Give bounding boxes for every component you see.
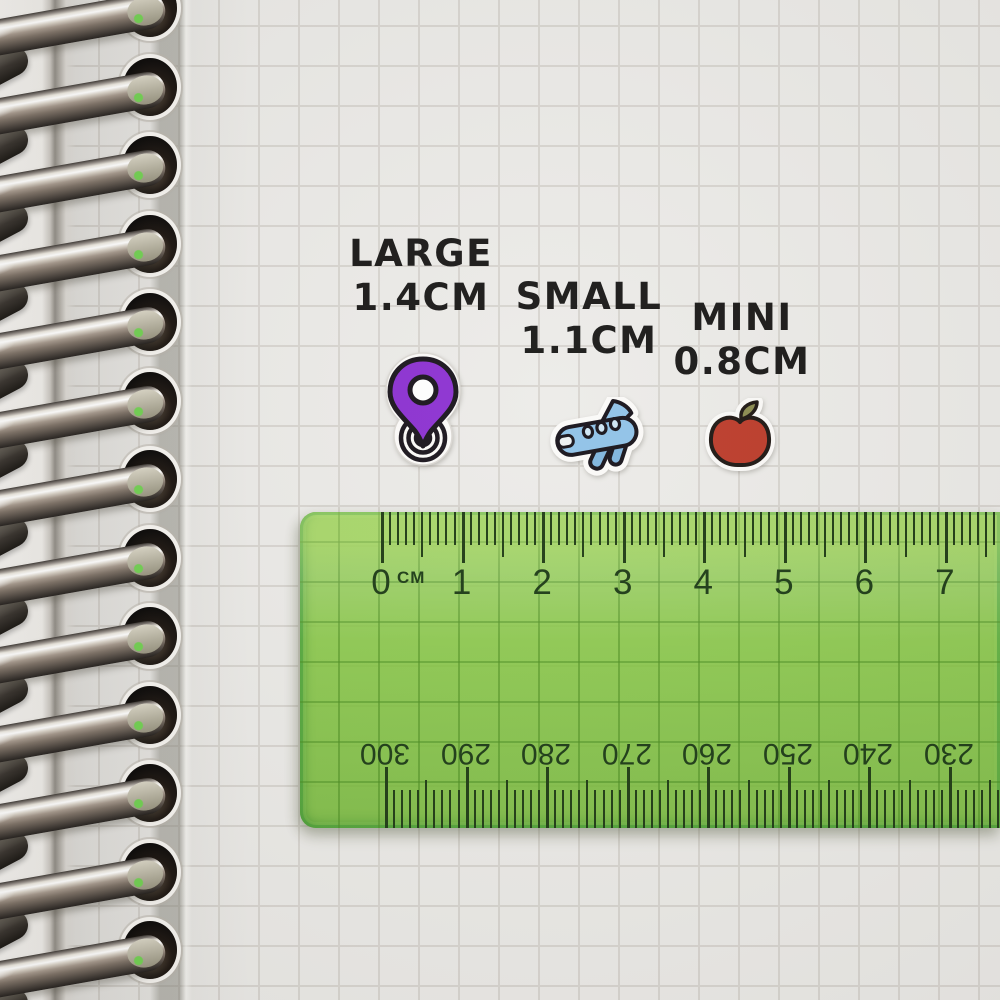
cm-tick — [679, 512, 681, 545]
mm-tick — [917, 790, 919, 828]
cm-tick — [542, 512, 545, 563]
mm-tick — [554, 790, 556, 828]
cm-tick-label: 4 — [694, 563, 713, 603]
mm-tick — [989, 780, 991, 828]
mm-tick — [748, 780, 750, 828]
mm-tick — [949, 767, 952, 828]
mm-tick — [828, 780, 830, 828]
mm-tick — [417, 790, 419, 828]
mm-tick — [852, 790, 854, 828]
mm-tick — [691, 790, 693, 828]
cm-tick — [945, 512, 948, 563]
sticker-location-pin — [384, 347, 462, 472]
cm-tick — [389, 512, 391, 545]
mm-tick — [401, 790, 403, 828]
mm-tick — [731, 790, 733, 828]
cm-tick — [647, 512, 649, 545]
cm-tick — [784, 512, 787, 563]
mm-tick-label: 240 — [843, 736, 893, 770]
cm-tick — [977, 512, 979, 545]
ruler: 01234567 300290280270260250240230 CM — [300, 512, 1000, 828]
mm-tick — [860, 790, 862, 828]
cm-tick — [953, 512, 955, 545]
mm-tick — [643, 790, 645, 828]
cm-tick — [937, 512, 939, 545]
mm-tick-label: 230 — [924, 736, 974, 770]
cm-tick — [687, 512, 689, 545]
cm-tick — [671, 512, 673, 545]
mm-tick — [925, 790, 927, 828]
binding-shadow — [0, 0, 270, 1000]
cm-tick-label: 0 — [371, 563, 390, 603]
cm-tick — [961, 512, 963, 545]
mm-tick — [530, 790, 532, 828]
mm-tick — [490, 790, 492, 828]
cm-tick-label: 6 — [855, 563, 874, 603]
cm-tick — [502, 512, 504, 557]
mm-tick — [522, 790, 524, 828]
cm-tick — [921, 512, 923, 545]
cm-tick — [445, 512, 447, 545]
mm-tick — [780, 790, 782, 828]
label-mini-name: MINI — [642, 296, 842, 340]
mm-tick — [667, 780, 669, 828]
mm-tick — [901, 790, 903, 828]
cm-tick — [518, 512, 520, 545]
mm-tick — [441, 790, 443, 828]
cm-tick — [413, 512, 415, 545]
cm-tick — [510, 512, 512, 545]
cm-tick — [711, 512, 713, 545]
mm-tick — [804, 790, 806, 828]
mm-tick — [820, 790, 822, 828]
cm-tick — [719, 512, 721, 545]
mm-tick — [635, 790, 637, 828]
mm-tick — [715, 790, 717, 828]
mm-tick — [876, 790, 878, 828]
mm-tick — [868, 767, 871, 828]
cm-tick — [381, 512, 384, 563]
cm-tick-label: 3 — [613, 563, 632, 603]
label-large-name: LARGE — [321, 232, 521, 276]
cm-tick — [792, 512, 794, 545]
cm-tick — [615, 512, 617, 545]
cm-tick — [550, 512, 552, 545]
mm-tick — [594, 790, 596, 828]
label-mini: MINI 0.8CM — [642, 296, 842, 384]
cm-tick — [824, 512, 826, 557]
mm-tick — [836, 790, 838, 828]
cm-tick — [776, 512, 778, 545]
cm-tick — [703, 512, 706, 563]
mm-tick — [707, 767, 710, 828]
mm-tick — [739, 790, 741, 828]
cm-tick — [574, 512, 576, 545]
cm-tick-label: 7 — [935, 563, 954, 603]
mm-tick — [385, 767, 388, 828]
cm-tick — [735, 512, 737, 545]
photo-notebook-scene: LARGE 1.4CM SMALL 1.1CM MINI 0.8CM — [0, 0, 1000, 1000]
cm-tick — [864, 512, 867, 563]
cm-tick — [993, 512, 995, 545]
mm-tick — [603, 790, 605, 828]
cm-tick — [760, 512, 762, 545]
location-pin-icon — [384, 347, 462, 467]
mm-tick — [458, 790, 460, 828]
mm-tick-label: 270 — [602, 736, 652, 770]
cm-tick — [534, 512, 536, 545]
mm-tick — [466, 767, 469, 828]
mm-tick — [611, 790, 613, 828]
mm-tick — [844, 790, 846, 828]
mm-tick — [498, 790, 500, 828]
cm-tick — [607, 512, 609, 545]
ruler-sheen — [300, 512, 1000, 828]
mm-tick — [474, 790, 476, 828]
cm-tick — [663, 512, 665, 557]
mm-tick — [449, 790, 451, 828]
mm-tick — [586, 780, 588, 828]
cm-tick — [429, 512, 431, 545]
cm-tick — [872, 512, 874, 545]
mm-tick — [562, 790, 564, 828]
cm-tick — [454, 512, 456, 545]
cm-tick — [623, 512, 626, 563]
mm-tick-label: 260 — [682, 736, 732, 770]
cm-tick — [856, 512, 858, 545]
cm-tick — [462, 512, 465, 563]
cm-tick-label: 5 — [774, 563, 793, 603]
mm-tick — [997, 790, 999, 828]
cm-tick — [631, 512, 633, 545]
mm-tick — [683, 790, 685, 828]
cm-tick — [752, 512, 754, 545]
cm-tick — [905, 512, 907, 557]
cm-tick — [816, 512, 818, 545]
mm-tick — [651, 790, 653, 828]
sticker-apple — [705, 398, 775, 477]
cm-tick — [808, 512, 810, 545]
cm-tick — [695, 512, 697, 545]
mm-tick — [699, 790, 701, 828]
mm-tick — [772, 790, 774, 828]
cm-tick — [397, 512, 399, 545]
cm-tick — [558, 512, 560, 545]
cm-tick — [526, 512, 528, 545]
cm-tick — [582, 512, 584, 557]
cm-tick — [744, 512, 746, 557]
cm-tick — [566, 512, 568, 545]
mm-tick — [884, 790, 886, 828]
mm-tick — [723, 790, 725, 828]
mm-tick — [812, 790, 814, 828]
mm-tick — [756, 790, 758, 828]
label-mini-size: 0.8CM — [642, 340, 842, 384]
cm-tick — [897, 512, 899, 545]
mm-tick — [570, 790, 572, 828]
mm-tick — [941, 790, 943, 828]
cm-tick — [985, 512, 987, 557]
cm-tick — [478, 512, 480, 545]
mm-tick — [393, 790, 395, 828]
cm-tick — [727, 512, 729, 545]
apple-icon — [705, 398, 775, 472]
mm-tick — [909, 780, 911, 828]
mm-tick — [433, 790, 435, 828]
cm-tick — [405, 512, 407, 545]
mm-tick — [893, 790, 895, 828]
mm-tick — [675, 790, 677, 828]
cm-tick — [421, 512, 423, 557]
cm-tick — [840, 512, 842, 545]
mm-tick — [619, 790, 621, 828]
cm-tick — [880, 512, 882, 545]
mm-tick — [788, 767, 791, 828]
cm-tick — [494, 512, 496, 545]
mm-tick — [506, 780, 508, 828]
mm-tick-label: 280 — [521, 736, 571, 770]
cm-tick — [889, 512, 891, 545]
mm-tick-label: 300 — [360, 736, 410, 770]
cm-tick — [599, 512, 601, 545]
cm-tick — [639, 512, 641, 545]
cm-tick-label: 2 — [532, 563, 551, 603]
cm-tick-label: 1 — [452, 563, 471, 603]
mm-tick — [973, 790, 975, 828]
mm-tick — [659, 790, 661, 828]
mm-tick — [546, 767, 549, 828]
cm-tick — [848, 512, 850, 545]
sticker-airplane — [543, 397, 655, 482]
mm-tick — [796, 790, 798, 828]
cm-tick — [437, 512, 439, 545]
mm-tick — [578, 790, 580, 828]
cm-tick — [590, 512, 592, 545]
mm-tick — [627, 767, 630, 828]
cm-tick — [832, 512, 834, 545]
mm-tick — [425, 780, 427, 828]
cm-tick — [969, 512, 971, 545]
cm-tick — [470, 512, 472, 545]
cm-tick — [913, 512, 915, 545]
airplane-icon — [543, 397, 655, 477]
cm-tick — [768, 512, 770, 545]
mm-tick — [514, 790, 516, 828]
cm-tick — [655, 512, 657, 545]
mm-tick — [482, 790, 484, 828]
mm-tick-label: 290 — [441, 736, 491, 770]
mm-tick — [933, 790, 935, 828]
mm-tick — [538, 790, 540, 828]
mm-tick — [965, 790, 967, 828]
cm-tick — [800, 512, 802, 545]
cm-tick — [929, 512, 931, 545]
mm-tick-label: 250 — [763, 736, 813, 770]
cm-tick — [486, 512, 488, 545]
mm-tick — [957, 790, 959, 828]
mm-tick — [981, 790, 983, 828]
ruler-unit-label: CM — [397, 568, 425, 588]
mm-tick — [409, 790, 411, 828]
mm-tick — [764, 790, 766, 828]
